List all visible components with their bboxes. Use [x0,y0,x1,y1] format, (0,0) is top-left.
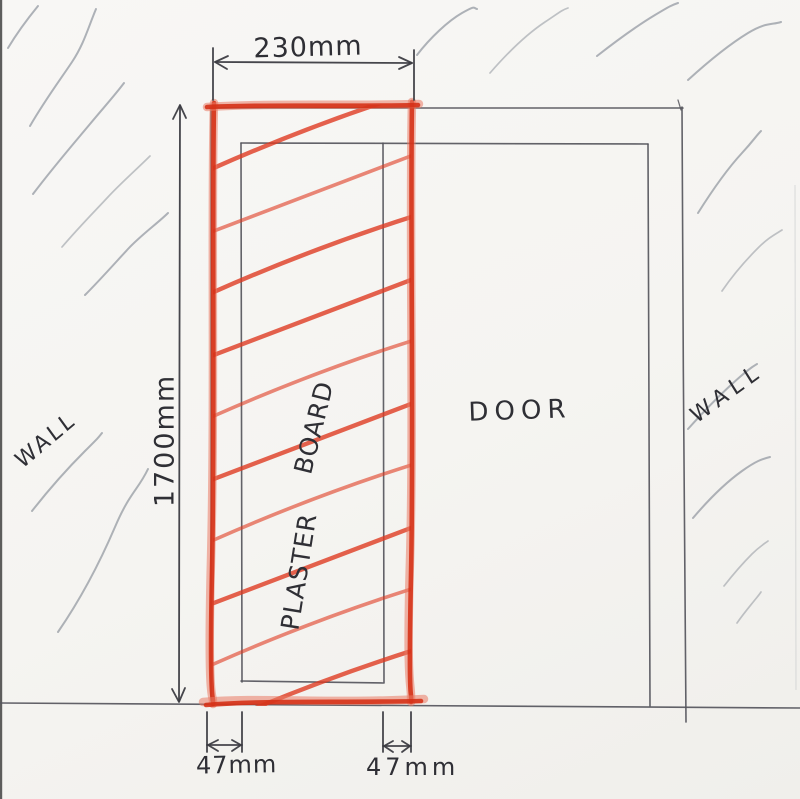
wall-texture-left [8,6,168,632]
dimension-47mm-left [207,712,242,752]
dimension-bottom-right-label: 47mm [366,753,446,781]
dimension-47mm-right [383,712,411,752]
dimension-left-label: 1700mm [150,371,181,511]
dimension-top-label: 230mm [243,30,374,64]
dimension-bottom-left-label: 47mm [196,750,266,779]
scan-edge [1,0,796,799]
door-label: DOOR [465,394,576,428]
sketch-drawing [0,0,800,799]
wall-texture-top [417,3,781,80]
hand-drawn-sketch: 230mm 1700mm 47mm 47mm DOOR WALL WALL PL… [0,0,800,799]
